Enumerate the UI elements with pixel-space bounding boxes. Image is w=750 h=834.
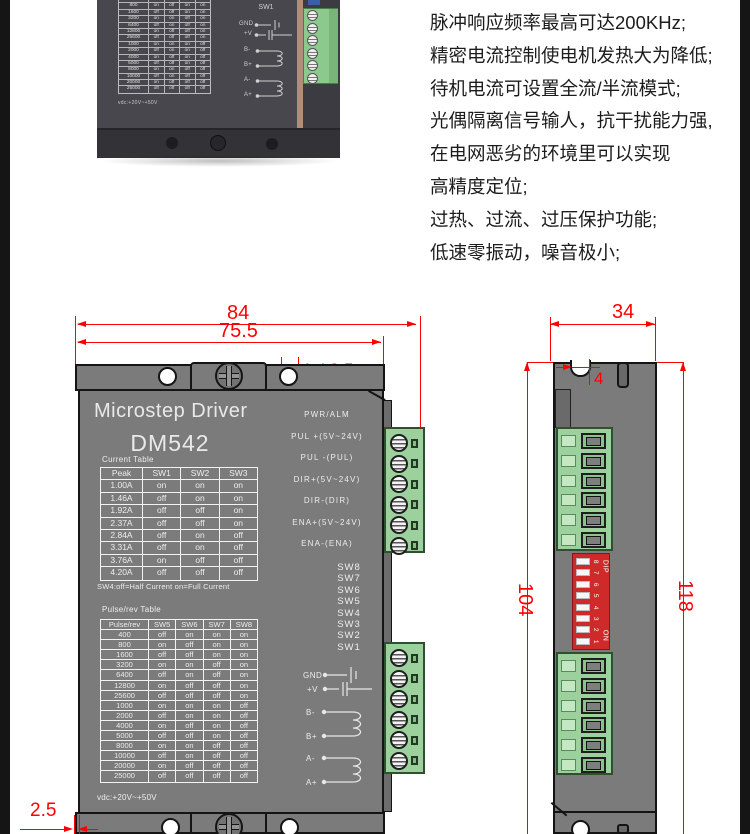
table-cell: 3.31A: [101, 542, 143, 554]
terminal-label-list-item: PUL +(5V~24V): [291, 433, 363, 441]
arrow-icon: [550, 321, 559, 327]
table-cell: on: [149, 761, 176, 771]
table-cell: off: [220, 542, 257, 554]
table-cell: 20000: [101, 761, 149, 771]
table-cell: on: [231, 630, 257, 640]
table-cell: SW2: [181, 468, 219, 480]
photo-coil-a-icon: [255, 76, 293, 102]
table-cell: off: [149, 86, 165, 92]
terminal-position: [390, 434, 418, 452]
table-cell: off: [143, 493, 181, 505]
dim-notch-label: 4: [594, 370, 603, 387]
terminal-wire-slot: [561, 759, 576, 771]
table-cell: 1.46A: [101, 493, 143, 505]
terminal-screw-icon: [390, 455, 408, 473]
table-cell: on: [181, 530, 219, 542]
a-plus-label: A+: [306, 778, 317, 787]
table-cell: off: [204, 741, 231, 751]
photo-dip-switch-edge: [308, 0, 320, 5]
table-cell: off: [204, 751, 231, 761]
gnd-label: GND: [303, 671, 322, 680]
table-cell: off: [196, 86, 211, 92]
dip-lever-icon: [576, 558, 590, 565]
panel-model: DM542: [120, 430, 220, 457]
table-cell: off: [231, 771, 257, 781]
table-cell: off: [231, 761, 257, 771]
terminal-screw-icon: [390, 537, 408, 555]
table-row: 12800onoffoffon: [101, 681, 257, 691]
dip-switch-levers: [576, 558, 590, 645]
photo-a-plus-label: A+: [244, 92, 252, 98]
photo-terminal-screws: [307, 10, 318, 84]
table-cell: off: [231, 751, 257, 761]
terminal-housing: [581, 678, 606, 694]
terminal-position: [390, 752, 418, 770]
table-row: 1.46Aoffonon: [101, 493, 257, 505]
table-row: Pulse/revSW5SW6SW7SW8: [101, 620, 257, 630]
phillips-screw-icon: [215, 362, 243, 390]
table-row: 1.00Aononon: [101, 480, 257, 492]
dim-extension-line: [75, 316, 76, 364]
table-cell: 2.84A: [101, 530, 143, 542]
table-cell: 1.92A: [101, 505, 143, 517]
photo-coil-b-icon: [255, 46, 293, 72]
table-cell: off: [149, 650, 176, 660]
table-cell: off: [149, 630, 176, 640]
table-row: 6400offonoffon: [101, 670, 257, 680]
dim-mount-width-line: [78, 342, 381, 343]
feature-bullet-list-item: 高精度定位;: [430, 171, 735, 204]
product-detail-image: 400offononon800onoffonon1600offoffonon32…: [0, 0, 750, 834]
dip-on-label: ON: [602, 629, 609, 643]
terminal-wire-slot: [561, 700, 576, 712]
terminal-housing: [581, 473, 606, 489]
driver-photo-body: 400offononon800onoffonon1600offoffonon32…: [97, 0, 340, 130]
table-cell: 5000: [101, 731, 149, 741]
table-cell: on: [143, 480, 181, 492]
dim-extension-line: [550, 317, 551, 361]
table-cell: 4.20A: [101, 567, 143, 579]
terminal-wire-slot: [561, 680, 576, 692]
terminal-pin: [411, 541, 418, 550]
table-cell: off: [143, 518, 181, 530]
table-cell: off: [231, 721, 257, 731]
side-terminal-block-top: [556, 427, 613, 551]
side-terminal-cell: [561, 757, 606, 773]
feature-bullet-list-item: 脉冲响应频率最高可达200KHz;: [430, 7, 735, 40]
terminal-pin: [411, 521, 418, 530]
dip-numbers-item: 6: [590, 580, 601, 589]
terminal-label-list-item: ENA+(5V~24V): [292, 519, 362, 527]
table-cell: on: [176, 711, 203, 721]
photo-terminal-block: [303, 8, 338, 84]
dim-mount-width-label: 75.5: [219, 321, 258, 341]
table-cell: on: [176, 670, 203, 680]
table-cell: SW3: [220, 468, 257, 480]
terminal-housing: [581, 658, 606, 674]
table-cell: 2000: [101, 711, 149, 721]
table-cell: off: [231, 741, 257, 751]
terminal-pin: [411, 674, 418, 683]
table-cell: on: [181, 542, 219, 554]
table-cell: off: [149, 691, 176, 701]
terminal-screw-icon: [390, 434, 408, 452]
terminal-screw-icon: [307, 48, 318, 59]
pulse-table-note: vdc:+20V~+50V: [97, 793, 157, 802]
table-cell: off: [149, 711, 176, 721]
table-cell: off: [204, 691, 231, 701]
dip-numbers-item: 1: [590, 637, 601, 646]
dip-numbers-item: 5: [590, 591, 601, 600]
table-row: PeakSW1SW2SW3: [101, 468, 257, 480]
side-mount-step: [555, 389, 571, 428]
table-row: 3.31Aoffonoff: [101, 542, 257, 554]
table-cell: on: [176, 660, 203, 670]
side-terminal-cell: [561, 532, 606, 548]
mount-hole: [158, 367, 177, 386]
table-row: 2.84Aoffonoff: [101, 530, 257, 542]
terminal-screw-icon: [390, 731, 408, 749]
dim-side-width-label: 34: [612, 302, 634, 322]
table-row: 1.92Aoffoffon: [101, 505, 257, 517]
terminal-screw-icon: [390, 475, 408, 493]
terminal-label-list-item: PUL -(PUL): [300, 454, 353, 462]
terminal-label-list-item: PWR/ALM: [304, 411, 350, 419]
table-cell: on: [204, 711, 231, 721]
terminal-housing: [581, 532, 606, 548]
dip-numbers-item: 4: [590, 603, 601, 612]
dim-extension-line: [655, 317, 656, 361]
terminal-pin: [411, 439, 418, 448]
sw-label-list-item: SW3: [337, 619, 361, 630]
a-minus-label: A-: [306, 754, 315, 763]
table-cell: on: [149, 681, 176, 691]
table-row: 400offononon: [101, 630, 257, 640]
dip-numbers-item: 7: [590, 569, 601, 578]
terminal-pin: [411, 459, 418, 468]
sw-label-list-item: SW7: [337, 573, 361, 584]
terminal-pin: [411, 736, 418, 745]
table-cell: SW5: [149, 620, 176, 630]
photo-sw-labels: SW2SW1: [255, 0, 277, 13]
table-row: 8000ononoffoff: [101, 741, 257, 751]
table-row: 10000offonoffoff: [101, 751, 257, 761]
table-cell: off: [176, 761, 203, 771]
b-minus-label: B-: [306, 708, 315, 717]
terminal-position: [390, 711, 418, 729]
table-cell: off: [176, 721, 203, 731]
table-cell: off: [176, 691, 203, 701]
table-cell: 12800: [101, 681, 149, 691]
photo-gnd-label: GND: [239, 21, 253, 27]
table-row: 25600offoffoffon: [101, 691, 257, 701]
side-terminal-cells: [561, 658, 606, 773]
side-terminal-block-bottom: [556, 652, 613, 775]
photo-b-minus-label: B-: [244, 47, 251, 53]
table-cell: 25000: [101, 771, 149, 781]
mount-hole: [161, 818, 180, 834]
dip-numbers-item: 3: [590, 614, 601, 623]
side-terminal-cell: [561, 433, 606, 449]
terminal-position: [390, 475, 418, 493]
table-cell: 2.37A: [101, 518, 143, 530]
side-terminal-cell: [561, 453, 606, 469]
table-cell: off: [149, 731, 176, 741]
side-terminal-cell: [561, 678, 606, 694]
side-terminal-cell: [561, 492, 606, 508]
table-cell: off: [231, 711, 257, 721]
table-cell: on: [231, 681, 257, 691]
table-row: 1000onononoff: [101, 701, 257, 711]
table-cell: on: [204, 731, 231, 741]
table-row: 3200ononoffon: [101, 660, 257, 670]
side-terminal-cells: [561, 433, 606, 548]
table-row: 2000offononoff: [101, 711, 257, 721]
table-cell: on: [143, 555, 181, 567]
terminal-position: [390, 690, 418, 708]
terminal-wire-slot: [561, 494, 576, 506]
table-cell: SW6: [176, 620, 203, 630]
arrow-icon: [646, 321, 655, 327]
front-terminal-block-bottom: [384, 642, 425, 774]
feature-bullet-list-item: 低速零振动，噪音极小;: [430, 237, 735, 270]
phillips-screw-icon: [215, 813, 243, 834]
feature-bullet-list-item: 待机电流可设置全流/半流模式;: [430, 73, 735, 106]
photo-pulse-table: 400offononon800onoffonon1600offoffonon32…: [118, 0, 211, 94]
table-cell: on: [204, 650, 231, 660]
table-cell: off: [149, 751, 176, 761]
dip-numbers: 87654321: [591, 556, 600, 647]
table-row: 4000onoffonoff: [101, 721, 257, 731]
table-cell: off: [165, 86, 181, 92]
side-terminal-cell: [561, 512, 606, 528]
dip-lever-icon: [576, 626, 590, 633]
flange-seam: [190, 812, 192, 834]
table-cell: on: [149, 660, 176, 670]
table-cell: on: [149, 741, 176, 751]
table-cell: on: [231, 660, 257, 670]
photo-sw-labels-item: SW1: [258, 2, 273, 13]
table-cell: off: [220, 530, 257, 542]
table-cell: on: [220, 480, 257, 492]
table-cell: on: [220, 493, 257, 505]
dim-flange-offset-line: [20, 829, 70, 830]
terminal-wire-slot: [561, 435, 576, 447]
arrow-icon: [77, 339, 86, 345]
table-cell: off: [181, 555, 219, 567]
terminal-position: [390, 455, 418, 473]
table-cell: off: [143, 505, 181, 517]
terminal-housing: [581, 492, 606, 508]
dim-overall-height-label: 118: [675, 580, 695, 624]
terminal-screw-icon: [307, 60, 318, 71]
photo-v-label: +V: [244, 31, 252, 37]
table-cell: SW1: [143, 468, 181, 480]
coil-a-symbol-icon: [321, 752, 373, 786]
table-cell: off: [231, 701, 257, 711]
terminal-position: [390, 537, 418, 555]
feature-bullet-list: 脉冲响应频率最高可达200KHz;精密电流控制使电机发热大为降低;待机电流可设置…: [430, 7, 735, 269]
table-cell: on: [231, 670, 257, 680]
terminal-screws: [390, 649, 418, 770]
terminal-housing: [581, 737, 606, 753]
terminal-housing: [581, 512, 606, 528]
table-cell: 3200: [101, 660, 149, 670]
table-cell: off: [181, 518, 219, 530]
terminal-screw-icon: [307, 23, 318, 34]
table-cell: off: [149, 670, 176, 680]
table-cell: 800: [101, 640, 149, 650]
feature-bullet-list-item: 在电网恶劣的环境里可以实现: [430, 138, 735, 171]
sw-label-list-item: SW8: [337, 562, 361, 573]
dim-tick: [79, 815, 80, 834]
terminal-wire-slot: [561, 455, 576, 467]
side-terminal-cell: [561, 717, 606, 733]
table-cell: on: [204, 701, 231, 711]
terminal-screw-icon: [390, 496, 408, 514]
front-terminal-block-top: [384, 427, 425, 553]
terminal-wire-slot: [561, 475, 576, 487]
table-cell: on: [176, 701, 203, 711]
table-cell: on: [204, 630, 231, 640]
mount-hole: [280, 818, 299, 834]
side-terminal-cell: [561, 698, 606, 714]
table-cell: off: [204, 761, 231, 771]
table-cell: 1.00A: [101, 480, 143, 492]
arrow-icon: [680, 362, 686, 371]
dip-switch: 87654321 DIP ON: [572, 553, 610, 650]
feature-bullet-list-item: 精密电流控制使电机发热大为降低;: [430, 40, 735, 73]
table-row: 5000offoffonoff: [101, 731, 257, 741]
table-cell: on: [231, 640, 257, 650]
terminal-screw-icon: [307, 35, 318, 46]
table-row: 800onoffonon: [101, 640, 257, 650]
table-cell: off: [204, 670, 231, 680]
terminal-position: [390, 649, 418, 667]
terminal-screw-icon: [390, 690, 408, 708]
coil-b-symbol-icon: [321, 706, 373, 740]
arrow-icon: [524, 362, 530, 371]
table-cell: on: [176, 741, 203, 751]
terminal-label-list-item: ENA-(ENA): [301, 540, 353, 548]
table-cell: 25600: [101, 691, 149, 701]
side-bottom-notch: [571, 820, 590, 834]
terminal-label-list-item: DIR+(5V~24V): [294, 476, 361, 484]
terminal-label-list: PWR/ALMPUL +(5V~24V)PUL -(PUL)DIR+(5V~24…: [277, 411, 377, 562]
terminal-housing: [581, 698, 606, 714]
table-cell: off: [220, 555, 257, 567]
terminal-wire-slot: [561, 534, 576, 546]
terminal-housing: [581, 717, 606, 733]
terminal-wire-slot: [561, 514, 576, 526]
terminal-label-list-item: DIR-(DIR): [304, 497, 350, 505]
table-cell: 8000: [101, 741, 149, 751]
table-cell: on: [181, 480, 219, 492]
table-cell: on: [231, 691, 257, 701]
dip-numbers-item: 2: [590, 626, 601, 635]
dip-lever-icon: [576, 615, 590, 622]
left-letterbox-bar: [0, 0, 10, 834]
table-cell: 1600: [101, 650, 149, 660]
dim-tick: [74, 815, 75, 834]
terminal-pin: [411, 756, 418, 765]
table-cell: 6400: [101, 670, 149, 680]
table-cell: on: [231, 650, 257, 660]
table-cell: on: [149, 721, 176, 731]
terminal-housing: [581, 433, 606, 449]
dip-numbers-item: 8: [590, 557, 601, 566]
pulse-table-label: Pulse/rev Table: [102, 605, 161, 614]
side-bottom-slot: [617, 824, 629, 834]
terminal-screw-icon: [390, 752, 408, 770]
table-cell: on: [220, 518, 257, 530]
table-row: 20000onoffoffoff: [101, 761, 257, 771]
driver-photo: 400offononon800onoffonon1600offoffonon32…: [97, 0, 340, 170]
terminal-wire-slot: [561, 739, 576, 751]
dim-notch-tick: [589, 359, 590, 385]
table-cell: off: [231, 731, 257, 741]
table-cell: off: [181, 505, 219, 517]
dim-extension-line: [420, 316, 421, 428]
terminal-position: [390, 496, 418, 514]
table-cell: Peak: [101, 468, 143, 480]
table-cell: off: [204, 681, 231, 691]
photo-mount-hole: [266, 138, 278, 150]
arrow-icon: [563, 364, 572, 370]
table-row: 25000offoffoffoff: [101, 771, 257, 781]
terminal-screws: [390, 434, 418, 555]
photo-terminal-edge: [329, 9, 338, 83]
table-cell: SW7: [204, 620, 231, 630]
flange-seam: [265, 812, 267, 834]
photo-a-minus-label: A-: [244, 77, 251, 83]
terminal-screw-icon: [390, 516, 408, 534]
arrow-icon: [77, 321, 86, 327]
terminal-screw-icon: [390, 670, 408, 688]
dim-flange-offset-label: 2.5: [30, 801, 56, 820]
dip-lever-icon: [576, 592, 590, 599]
terminal-position: [390, 731, 418, 749]
table-cell: 10000: [101, 751, 149, 761]
table-cell: off: [149, 771, 176, 781]
side-bottom-seam: [554, 811, 656, 813]
terminal-pin: [411, 500, 418, 509]
table-row: 4.20Aoffoffoff: [101, 567, 257, 579]
dim-extension-line: [383, 336, 384, 364]
dip-lever-icon: [576, 569, 590, 576]
sw-label-list-item: SW2: [337, 630, 361, 641]
table-cell: on: [176, 751, 203, 761]
table-cell: on: [149, 701, 176, 711]
current-table-note: SW4:off=Half Current on=Full Current: [97, 582, 230, 591]
table-cell: on: [204, 640, 231, 650]
table-row: 2.37Aoffoffon: [101, 518, 257, 530]
terminal-housing: [581, 757, 606, 773]
dip-lever-icon: [576, 638, 590, 645]
sw-label-list-item: SW5: [337, 596, 361, 607]
table-cell: on: [220, 505, 257, 517]
dip-label: DIP: [602, 560, 609, 574]
table-cell: off: [143, 530, 181, 542]
side-top-slot: [617, 362, 629, 388]
table-cell: off: [220, 567, 257, 579]
table-cell: off: [143, 542, 181, 554]
terminal-position: [390, 670, 418, 688]
table-cell: 1000: [101, 701, 149, 711]
dim-body-height-label: 104: [515, 583, 535, 627]
table-cell: 25000: [119, 86, 149, 92]
terminal-screw-icon: [390, 649, 408, 667]
